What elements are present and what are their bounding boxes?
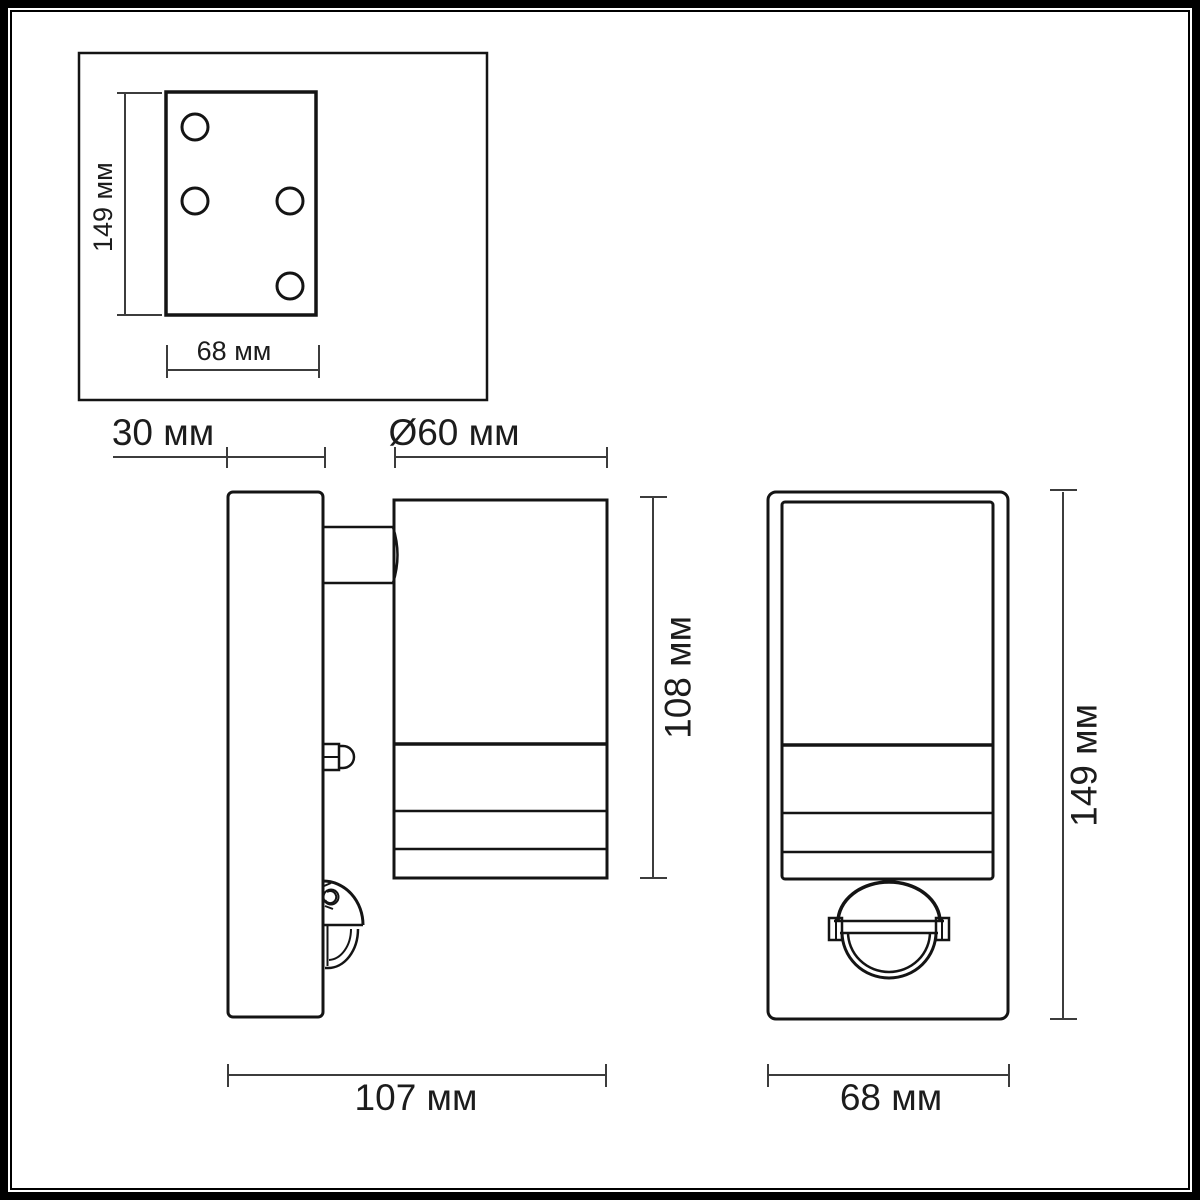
mounting-hole <box>182 188 208 214</box>
lamp-cylinder-outline <box>394 500 607 878</box>
housing-outline <box>768 492 1008 1019</box>
side-view-body-height-label: 108 мм <box>660 597 699 757</box>
front-view-height-label: 149 мм <box>1066 685 1105 845</box>
motion-sensor-side <box>323 881 363 968</box>
motion-sensor-front <box>829 882 949 978</box>
plate-view-width-label: 68 мм <box>174 337 294 365</box>
mounting-plate-outline <box>166 92 316 315</box>
wall-plate-outline <box>228 492 323 1017</box>
side-view-total-depth-label: 107 мм <box>316 1079 516 1118</box>
front-view-width-label: 68 мм <box>791 1079 991 1118</box>
sensor-screw <box>324 883 339 909</box>
mounting-hole <box>277 188 303 214</box>
side-view-diameter-label: Ø60 мм <box>354 414 554 453</box>
side-view <box>113 447 667 1087</box>
front-view <box>768 490 1077 1087</box>
switch-knob <box>323 744 354 770</box>
plate-view-height-label: 149 мм <box>89 147 117 267</box>
side-view-plate-depth-label: 30 мм <box>83 414 243 453</box>
technical-drawing-page: 149 мм 68 мм 30 мм Ø60 мм 108 мм 107 мм … <box>0 0 1200 1200</box>
mount-bracket <box>324 527 398 583</box>
drawing-artwork <box>0 0 1200 1200</box>
mounting-hole <box>277 273 303 299</box>
plate-height-dimension-line <box>117 93 162 315</box>
mounting-hole <box>182 114 208 140</box>
lamp-face-outline <box>782 502 993 879</box>
